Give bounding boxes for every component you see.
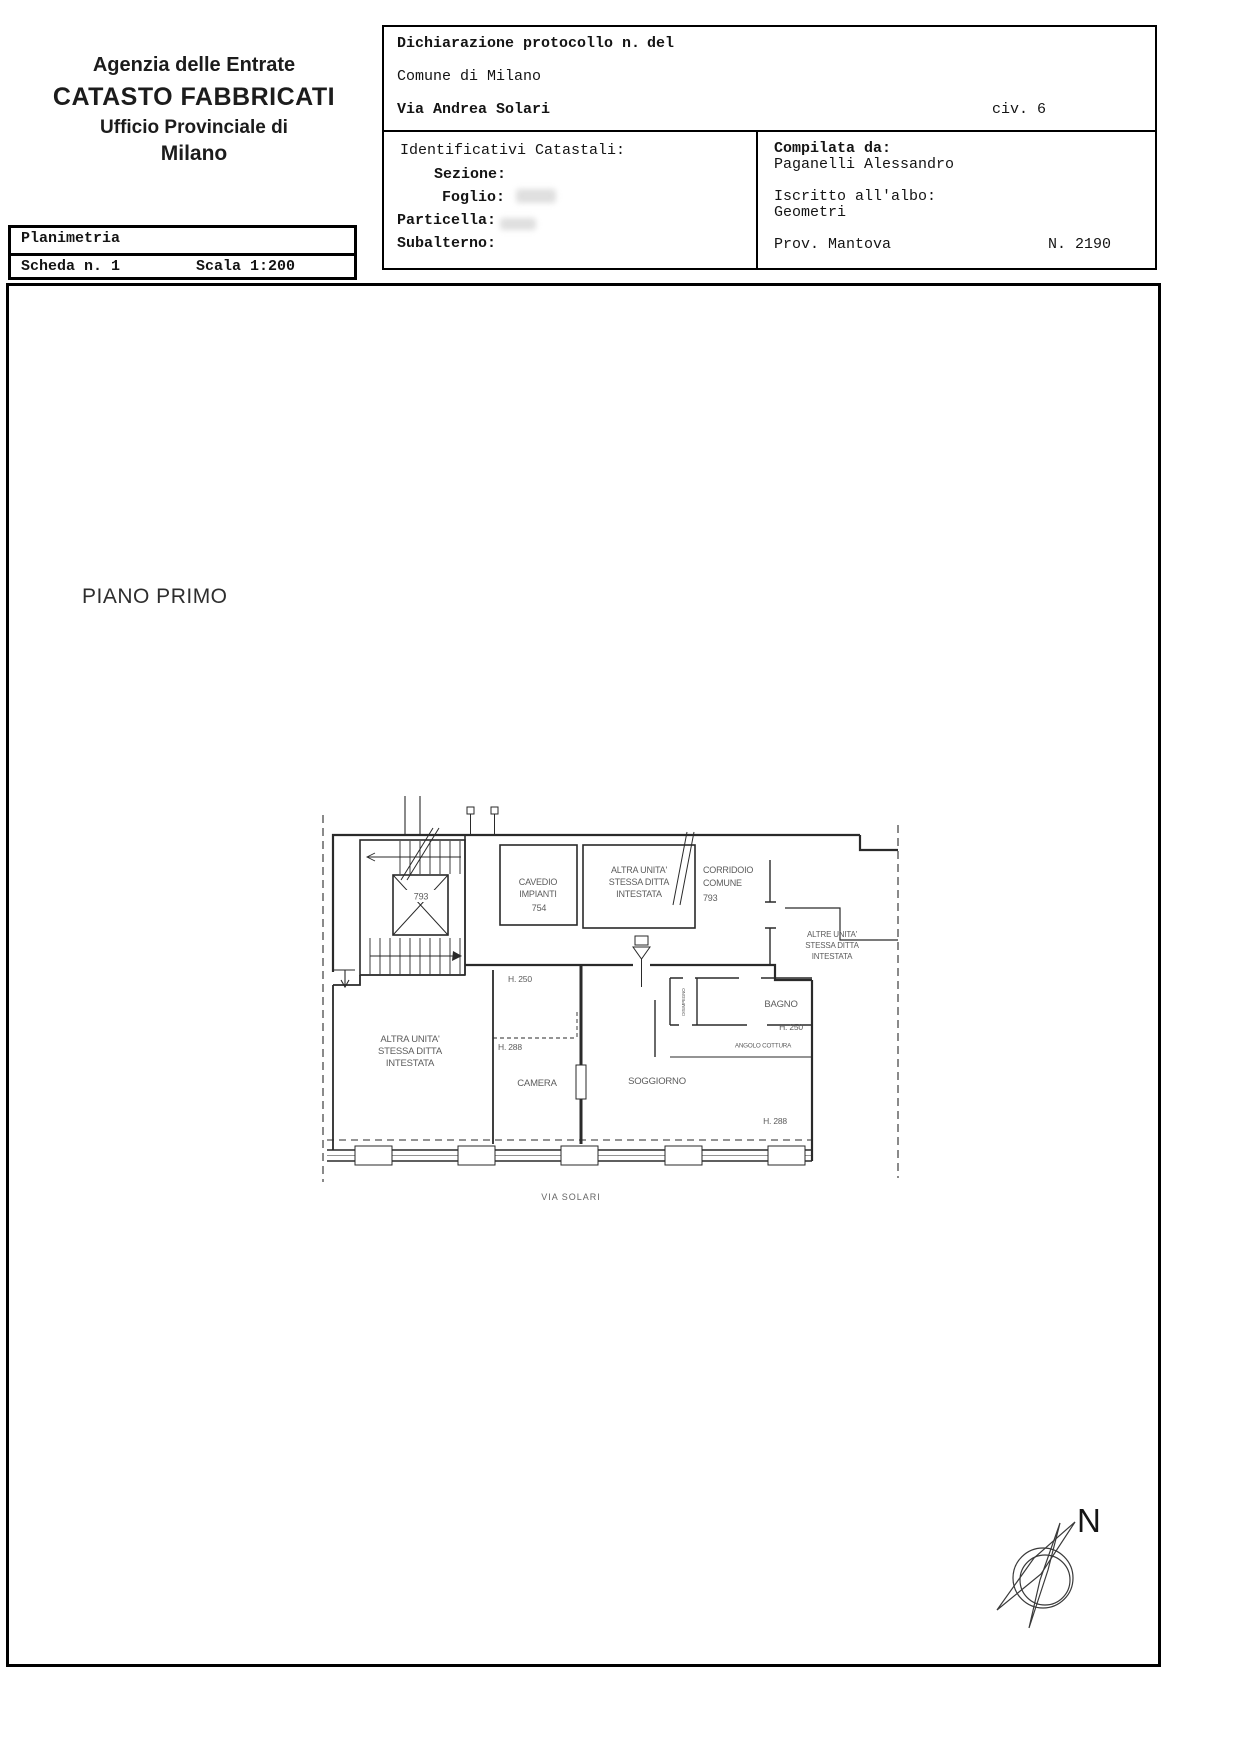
corridor-bottom-wall	[465, 965, 812, 1161]
scheda-number: Scheda n. 1	[21, 258, 120, 275]
redacted-particella-value	[500, 218, 536, 230]
upper-unit-label-3: INTESTATA	[616, 889, 662, 899]
identifiers-compiler-row: Identificativi Catastali: Sezione: Fogli…	[384, 132, 1155, 268]
agency-name: Agenzia delle Entrate	[38, 54, 350, 77]
foglio-label: Foglio:	[442, 189, 505, 206]
stair-number-label: 793	[414, 892, 429, 902]
lower-unit-label-3: INTESTATA	[386, 1058, 435, 1069]
floor-plan: 793 CAVEDIO IMPIANTI 754 ALTRA UNITA' ST…	[315, 790, 915, 1210]
scheda-row: Scheda n. 1 Scala 1:200	[11, 256, 354, 281]
right-unit-label-3: INTESTATA	[812, 952, 853, 961]
office-city: Milano	[38, 142, 350, 166]
corridor-label-1: CORRIDOIO	[703, 865, 753, 875]
sezione-label: Sezione:	[434, 166, 506, 183]
soggiorno-height-label: H. 288	[763, 1116, 787, 1126]
soggiorno-label: SOGGIORNO	[628, 1076, 686, 1087]
upper-unit-label-1: ALTRA UNITA'	[611, 865, 667, 875]
lower-left-unit-walls	[333, 975, 360, 1150]
subalterno-label: Subalterno:	[397, 235, 496, 252]
upper-unit-label-2: STESSA DITTA	[609, 877, 670, 887]
bagno-height-label: H. 250	[779, 1022, 803, 1032]
north-letter: N	[1077, 1502, 1101, 1539]
internal-door	[576, 1065, 586, 1099]
flue-lines	[405, 796, 420, 835]
wall-posts	[467, 807, 498, 835]
protocol-date-label: del	[647, 35, 674, 52]
angolo-cottura-label: ANGOLO COTTURA	[735, 1043, 792, 1050]
north-compass: N	[985, 1468, 1125, 1638]
cavedio-label-3: 754	[532, 903, 547, 913]
planimetria-title: Planimetria	[11, 228, 354, 256]
corridor-right-wall	[765, 860, 776, 965]
street-line: Via Andrea Solari	[397, 101, 550, 118]
compass-rose	[997, 1522, 1075, 1628]
compiler-cell: Compilata da: Paganelli Alessandro Iscri…	[758, 132, 1155, 268]
camera-label: CAMERA	[517, 1078, 557, 1089]
entry-height-label: H. 250	[508, 974, 532, 984]
lower-unit-label-1: ALTRA UNITA'	[380, 1034, 440, 1045]
floor-title: PIANO PRIMO	[82, 585, 228, 609]
facade-windows	[327, 1140, 812, 1167]
comune-line: Comune di Milano	[397, 68, 541, 85]
height-zone-dashed	[493, 1012, 577, 1038]
declaration-box: Dichiarazione protocollo n. del Comune d…	[382, 25, 1157, 270]
particella-label: Particella:	[397, 212, 496, 229]
cadastral-document-page: { "agency": { "line1": "Agenzia delle En…	[0, 0, 1240, 1755]
agency-letterhead: Agenzia delle Entrate CATASTO FABBRICATI…	[38, 54, 350, 166]
cavedio-label-2: IMPIANTI	[519, 889, 556, 899]
office-line: Ufficio Provinciale di	[38, 117, 350, 139]
stairwell	[333, 828, 465, 987]
right-unit-label-1: ALTRE UNITA'	[807, 930, 858, 939]
registration-number: N. 2190	[1048, 236, 1111, 253]
break-lines	[673, 832, 694, 905]
protocol-label: Dichiarazione protocollo n.	[397, 35, 640, 52]
civic-number: civ. 6	[992, 101, 1046, 118]
albo-value: Geometri	[774, 204, 846, 221]
identifiers-title: Identificativi Catastali:	[400, 142, 625, 159]
albo-label: Iscritto all'albo:	[774, 188, 936, 205]
compiled-by-label: Compilata da:	[774, 140, 891, 157]
lower-unit-label-2: STESSA DITTA	[378, 1046, 443, 1057]
disimpegno-label: DISIMPEGNO	[681, 988, 686, 1016]
cadastre-title: CATASTO FABBRICATI	[38, 83, 350, 112]
declaration-row: Dichiarazione protocollo n. del Comune d…	[384, 27, 1155, 132]
identifiers-cell: Identificativi Catastali: Sezione: Fogli…	[384, 132, 758, 268]
bagno-label: BAGNO	[764, 999, 797, 1010]
compass-outer-circle	[1013, 1548, 1073, 1608]
province-value: Prov. Mantova	[774, 236, 891, 253]
corridor-label-2: COMUNE	[703, 878, 742, 888]
entrance-door-symbol	[633, 936, 650, 987]
street-name-label: VIA SOLARI	[541, 1192, 601, 1202]
camera-height-label: H. 288	[498, 1042, 522, 1052]
compiler-name: Paganelli Alessandro	[774, 156, 954, 173]
plan-walls	[323, 796, 898, 1182]
cavedio-label-1: CAVEDIO	[519, 877, 558, 887]
redacted-foglio-value	[516, 189, 556, 203]
right-unit-label-2: STESSA DITTA	[805, 941, 859, 950]
scale-value: Scala 1:200	[196, 258, 295, 275]
corridor-label-3: 793	[703, 893, 718, 903]
planimetria-box: Planimetria Scheda n. 1 Scala 1:200	[8, 225, 357, 280]
elevator-shaft	[393, 875, 448, 935]
